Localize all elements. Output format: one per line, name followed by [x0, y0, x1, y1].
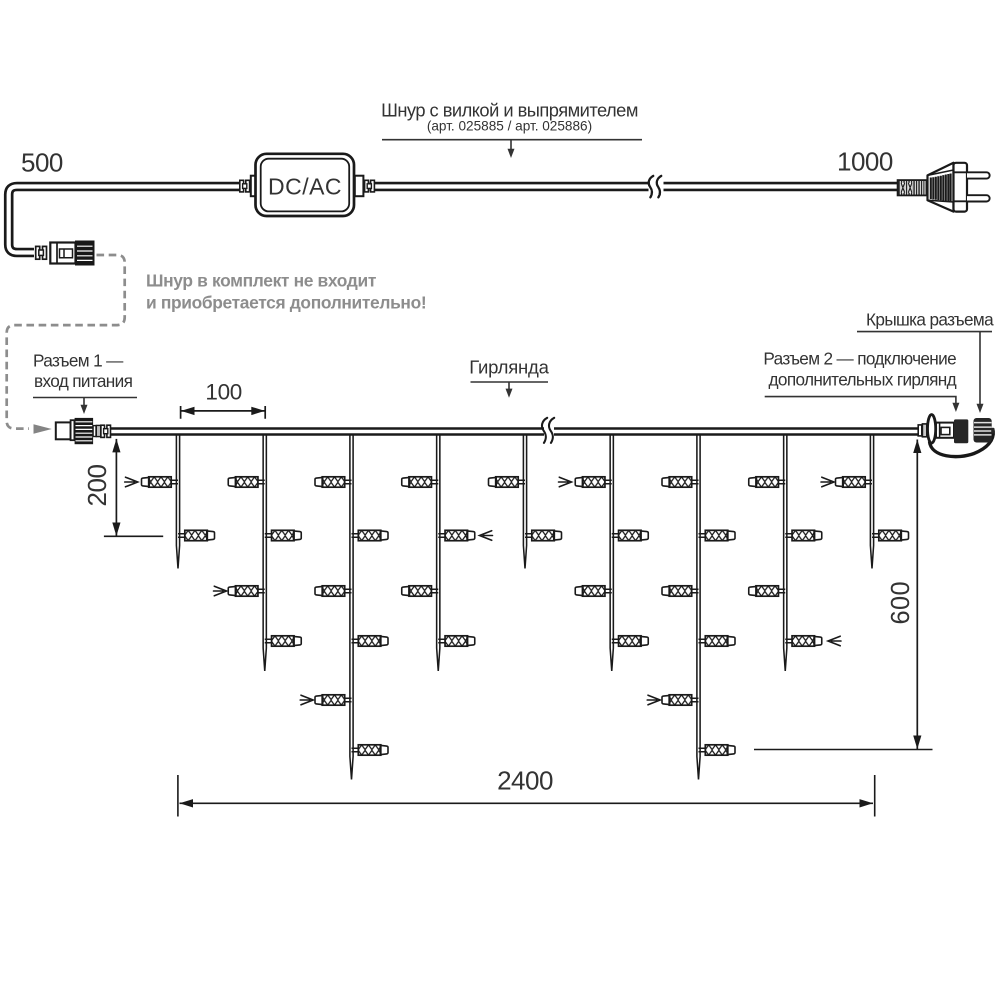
svg-text:Разъем 1 —: Разъем 1 —	[33, 351, 124, 371]
svg-text:2400: 2400	[497, 766, 553, 796]
svg-text:200: 200	[82, 465, 112, 507]
svg-text:100: 100	[205, 380, 242, 405]
svg-text:Шнур в комплект не входит: Шнур в комплект не входит	[146, 271, 377, 291]
svg-text:500: 500	[21, 148, 63, 178]
svg-text:Разъем 2 — подключение: Разъем 2 — подключение	[763, 349, 956, 369]
svg-text:600: 600	[887, 581, 915, 624]
svg-text:DC/AC: DC/AC	[268, 174, 342, 200]
svg-text:Крышка разъема: Крышка разъема	[866, 310, 994, 330]
svg-text:дополнительных гирлянд: дополнительных гирлянд	[769, 370, 957, 390]
svg-text:(арт. 025885 / арт. 025886): (арт. 025885 / арт. 025886)	[427, 119, 592, 134]
svg-text:Гирлянда: Гирлянда	[469, 357, 549, 378]
svg-text:1000: 1000	[837, 147, 893, 177]
svg-text:Шнур с вилкой и выпрямителем: Шнур с вилкой и выпрямителем	[381, 100, 638, 121]
svg-text:и приобретается дополнительно!: и приобретается дополнительно!	[146, 293, 426, 313]
svg-text:вход питания: вход питания	[34, 371, 133, 391]
